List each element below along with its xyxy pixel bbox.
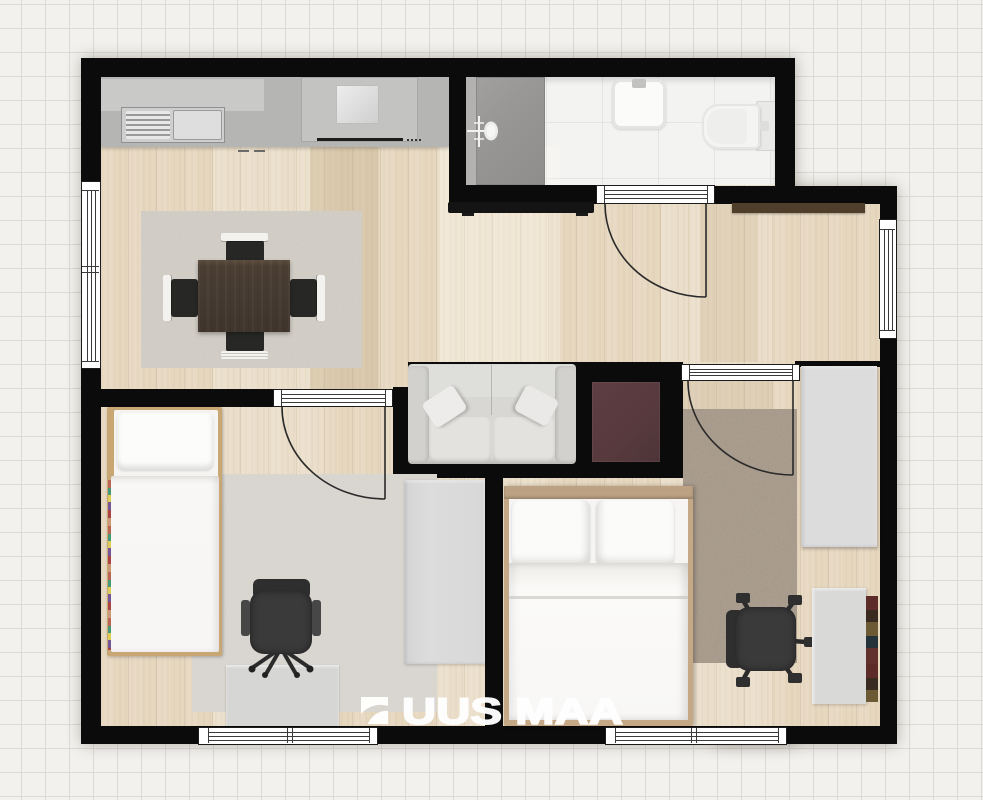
svg-text:UUS MAA: UUS MAA [402, 691, 623, 732]
